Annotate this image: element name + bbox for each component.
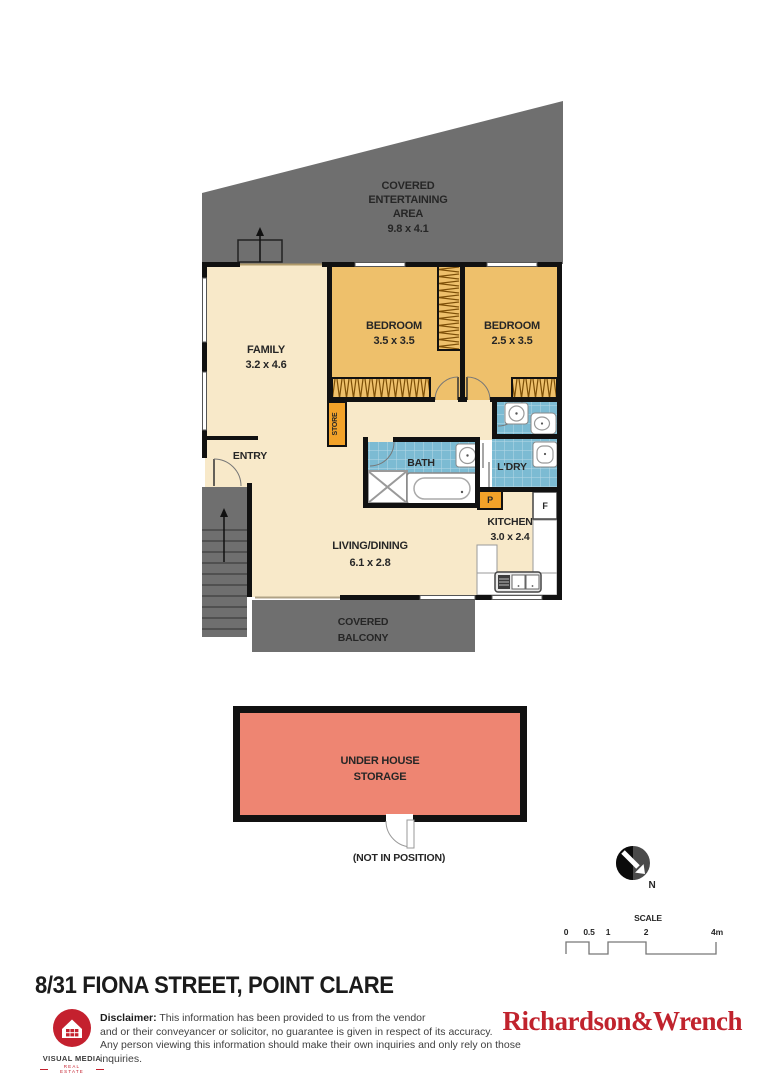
- page-title: 8/31 FIONA STREET, POINT CLARE: [35, 972, 394, 1000]
- visual-media-name: VISUAL MEDIA: [40, 1054, 104, 1063]
- family-label: FAMILY: [247, 344, 286, 356]
- bedroom2-dims: 2.5 x 3.5: [491, 335, 532, 347]
- staircase: [202, 487, 247, 637]
- stove-sink-icon: [495, 572, 541, 592]
- scale-tick-4m: 4m: [711, 927, 724, 937]
- balcony-label-2: BALCONY: [338, 632, 389, 644]
- disclaimer-line-2: and or their conveyancer or solicitor, n…: [100, 1026, 530, 1040]
- wc-basin-icon: [505, 403, 528, 424]
- fridge-icon: F: [533, 492, 557, 519]
- fridge-label: F: [542, 501, 548, 511]
- floorplan-drawing: COVERED ENTERTAINING AREA 9.8 x 4.1: [0, 0, 764, 960]
- entertaining-label-3: AREA: [393, 208, 424, 220]
- covered-entertaining-area: COVERED ENTERTAINING AREA 9.8 x 4.1: [202, 101, 563, 264]
- toilet-icon: [531, 413, 556, 434]
- scale-tick-0: 0: [564, 927, 569, 937]
- scale-bar: SCALE 0 0.5 1 2 4m: [564, 913, 724, 954]
- kitchen-label: KITCHEN: [487, 516, 532, 528]
- bedroom2-wardrobe-icon: [512, 378, 557, 399]
- entry-label: ENTRY: [233, 450, 267, 462]
- bathtub-icon: [407, 473, 477, 504]
- entertaining-dims: 9.8 x 4.1: [387, 223, 428, 235]
- store-label: STORE: [332, 412, 339, 436]
- balcony-label-1: COVERED: [338, 616, 389, 628]
- store-cupboard: STORE: [328, 402, 346, 446]
- north-label: N: [648, 880, 655, 891]
- family-dims: 3.2 x 4.6: [245, 359, 286, 371]
- bedroom1-label: BEDROOM: [366, 320, 422, 332]
- under-house-storage: UNDER HOUSE STORAGE (NOT IN POSITION): [237, 710, 524, 865]
- tall-wardrobe-icon: [438, 265, 461, 350]
- kitchen-dims: 3.0 x 2.4: [490, 531, 529, 543]
- tagline-dash-right: [96, 1069, 104, 1070]
- bath-label: BATH: [407, 457, 435, 469]
- disclaimer-line-3: Any person viewing this information shou…: [100, 1039, 530, 1066]
- scale-tick-1: 1: [606, 927, 611, 937]
- agency-logo: Richardson&Wrench: [502, 1006, 742, 1037]
- floorplan-page: COVERED ENTERTAINING AREA 9.8 x 4.1: [0, 0, 764, 1080]
- bedroom2-label: BEDROOM: [484, 320, 540, 332]
- disclaimer-label: Disclaimer:: [100, 1012, 157, 1024]
- entertaining-label-2: ENTERTAINING: [368, 194, 447, 206]
- bath-room: BATH: [368, 442, 479, 504]
- living-dims: 6.1 x 2.8: [349, 557, 390, 569]
- scale-title: SCALE: [634, 913, 662, 923]
- storage-note: (NOT IN POSITION): [353, 852, 445, 864]
- north-compass: N: [616, 846, 656, 891]
- storage-door: [386, 814, 414, 848]
- bath-laundry-slider: [480, 440, 492, 490]
- entertaining-label-1: COVERED: [382, 180, 435, 192]
- laundry-label: L'DRY: [497, 461, 527, 473]
- covered-balcony: COVERED BALCONY: [252, 600, 475, 652]
- scale-tick-05: 0.5: [583, 927, 595, 937]
- disclaimer-block: Disclaimer: This information has been pr…: [100, 1012, 530, 1066]
- pantry-label: P: [487, 495, 493, 505]
- wc-room: [497, 402, 557, 434]
- shower-icon: [368, 471, 407, 503]
- visual-media-house-icon: [50, 1008, 94, 1048]
- visual-media-tagline: REAL ESTATE: [51, 1064, 93, 1074]
- laundry-tub-icon: [533, 442, 557, 467]
- scale-bar-line: [566, 942, 716, 954]
- bedroom1-dims: 3.5 x 3.5: [373, 335, 414, 347]
- tagline-dash-left: [40, 1069, 48, 1070]
- disclaimer-line-1: Disclaimer: This information has been pr…: [100, 1012, 530, 1026]
- storage-label-2: STORAGE: [354, 771, 407, 783]
- laundry-room: L'DRY: [492, 439, 557, 487]
- visual-media-logo: VISUAL MEDIA REAL ESTATE: [40, 1008, 104, 1074]
- storage-label-1: UNDER HOUSE: [340, 755, 419, 767]
- kitchen-counter-left: [477, 545, 497, 575]
- main-floor: BATH L'DRY: [202, 262, 562, 600]
- living-label: LIVING/DINING: [332, 540, 408, 552]
- bedroom1-wardrobe-icon: [332, 378, 430, 399]
- scale-tick-2: 2: [644, 927, 649, 937]
- disclaimer-text-1: This information has been provided to us…: [157, 1012, 426, 1024]
- visual-media-tagline-row: REAL ESTATE: [40, 1064, 104, 1074]
